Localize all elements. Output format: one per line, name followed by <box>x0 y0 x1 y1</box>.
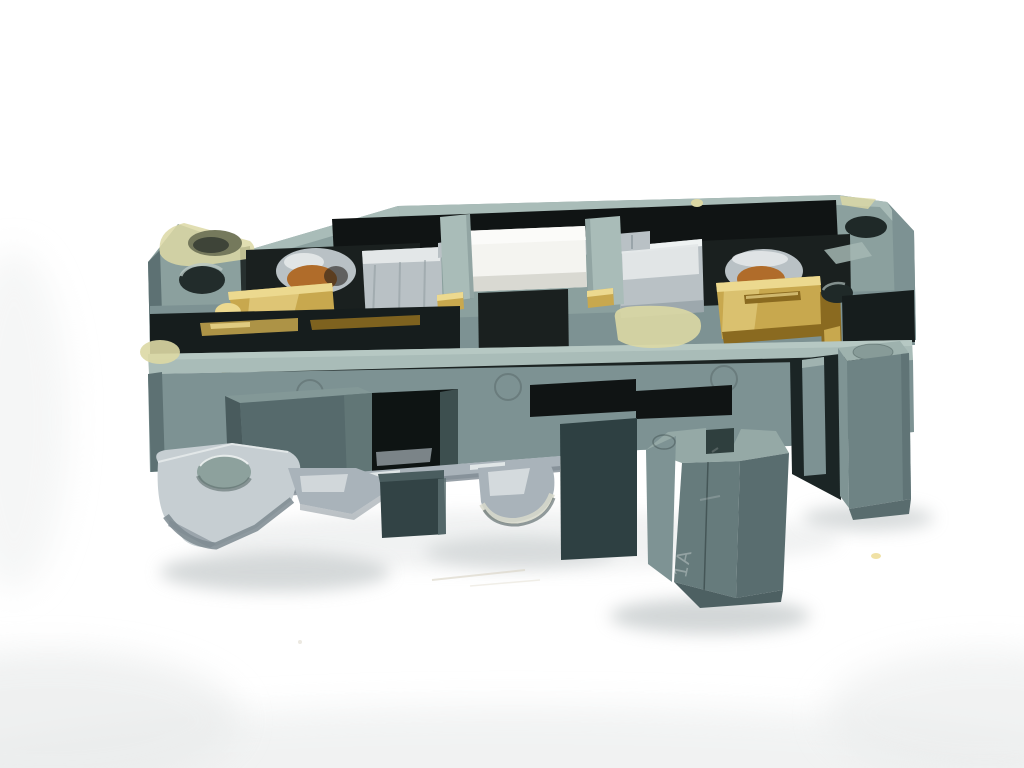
front-block-right-facet <box>344 393 372 481</box>
lower-slot-right-step <box>636 385 732 419</box>
end-slot-fin <box>802 357 826 476</box>
right-screw-highlight <box>732 251 788 267</box>
right-brass-sheen <box>722 285 760 334</box>
dark-tab <box>378 470 446 538</box>
lower-notch-wall <box>440 389 458 474</box>
residue-blob-left-corner <box>140 340 180 364</box>
shadow-left-clip <box>160 552 390 592</box>
speck-1 <box>298 640 302 644</box>
residue-speck-top <box>691 199 703 207</box>
dark-tab-face <box>380 478 446 538</box>
residue-blob-center <box>615 306 701 348</box>
foot-notch <box>706 428 734 454</box>
lower-slot-right <box>530 379 636 417</box>
dark-tab-edge <box>438 478 446 535</box>
din-clip-center <box>478 462 554 525</box>
flange-hole-upper-right <box>845 216 887 238</box>
left-screw-shadow <box>324 266 348 286</box>
clip-center-glint <box>488 468 530 496</box>
gold-speck <box>871 553 881 559</box>
flange-hole-upper-left-shadow <box>193 237 229 253</box>
clip-left-wedge-glint <box>300 474 348 492</box>
foot-shadow-face <box>560 418 637 560</box>
terminal-block-photo: 1A <box>0 0 1024 768</box>
gap-right <box>842 290 915 346</box>
photo-canvas: 1A <box>0 0 1024 768</box>
foot-right-face <box>736 453 789 598</box>
